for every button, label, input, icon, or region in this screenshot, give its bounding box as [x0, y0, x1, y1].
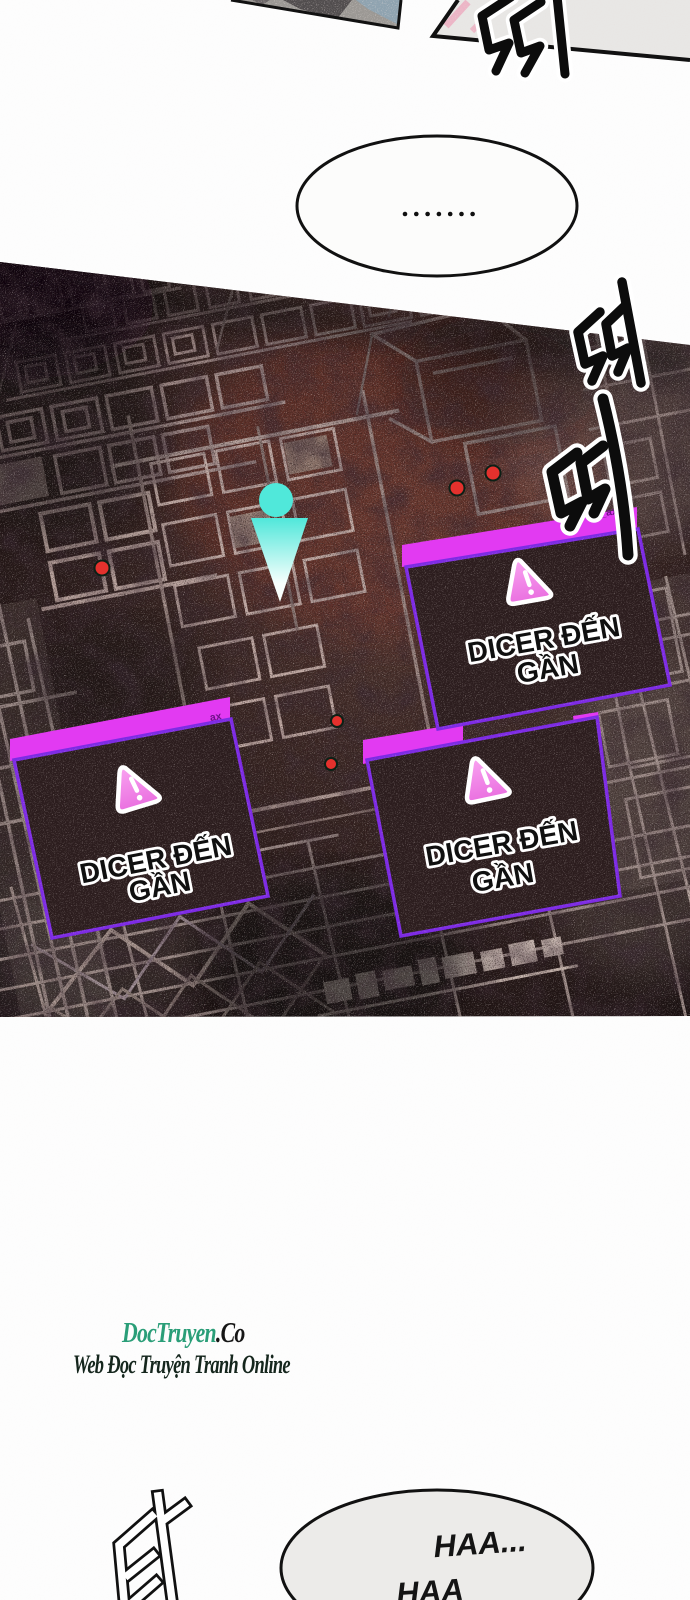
svg-text:Web Đọc Truyện Tranh Online: Web Đọc Truyện Tranh Online	[73, 1350, 291, 1379]
svg-text:HAA: HAA	[395, 1572, 464, 1600]
svg-text:DocTruyen.Co: DocTruyen.Co	[121, 1316, 244, 1349]
svg-text:HAA...: HAA...	[432, 1523, 527, 1564]
